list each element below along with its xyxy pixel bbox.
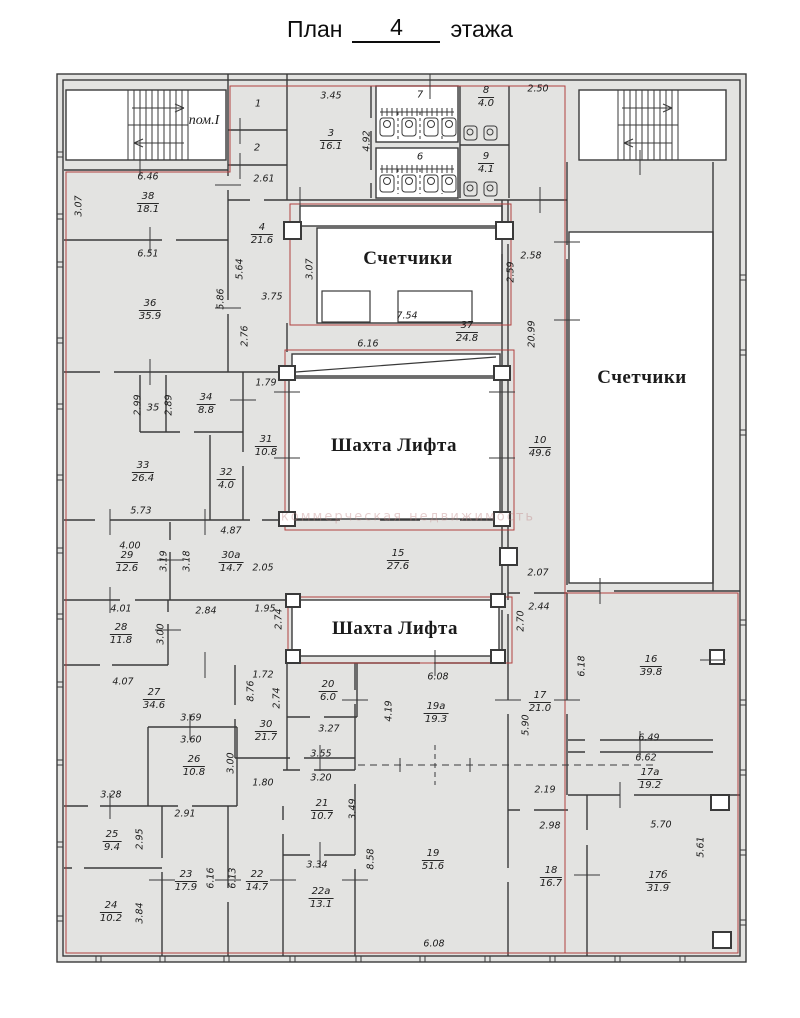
- dimension-label: 2.07: [527, 568, 548, 579]
- room-label: 2811.8: [110, 622, 132, 646]
- dimension-label: 1.72: [252, 670, 273, 681]
- dimension-label: 5.61: [696, 836, 707, 857]
- room-label: 316.1: [320, 128, 342, 152]
- dimension-label: 2.19: [534, 785, 555, 796]
- meters-room-center: [317, 228, 502, 323]
- dimension-label: 6.46: [137, 172, 158, 183]
- dimension-label: 2.58: [520, 251, 541, 262]
- dimension-label: 6.16: [357, 339, 378, 350]
- watermark: коммерческая недвижимость: [281, 510, 535, 525]
- dimension-label: 6.51: [137, 249, 158, 260]
- room-label: 7: [417, 89, 423, 101]
- room-label: 30а14.7: [219, 550, 244, 574]
- room-label: 2734.6: [143, 687, 165, 711]
- dimension-label: 3.07: [305, 258, 316, 279]
- dimension-label: 2.74: [274, 608, 285, 629]
- floor-plan-page: План4этажа: [0, 0, 800, 1018]
- dimension-label: 2.91: [174, 809, 195, 820]
- room-label: 206.0: [319, 679, 338, 703]
- dimension-label: 2.44: [528, 602, 549, 613]
- room-label: 3818.1: [137, 191, 159, 215]
- dimension-label: 2.05: [252, 563, 273, 574]
- dimension-label: 2.95: [135, 828, 146, 849]
- dimension-label: 1.80: [252, 778, 273, 789]
- room-label: 3110.8: [255, 434, 277, 458]
- dimension-label: 2.84: [195, 606, 216, 617]
- room-label: 2317.9: [175, 869, 197, 893]
- dimension-label: 4.19: [384, 700, 395, 721]
- dimension-label: 6.18: [577, 655, 588, 676]
- dimension-label: 8.76: [246, 680, 257, 701]
- room-label: 324.0: [217, 467, 236, 491]
- dimension-label: 3.00: [156, 623, 167, 644]
- room-label: 1527.6: [387, 548, 409, 572]
- room-label: 1: [255, 98, 261, 110]
- dimension-label: 3.07: [74, 195, 85, 216]
- dimension-label: 2.89: [164, 394, 175, 415]
- room-label: 1639.8: [640, 654, 662, 678]
- room-label: 3635.9: [139, 298, 161, 322]
- dimension-label: 4.92: [362, 130, 373, 151]
- room-label: 1049.6: [529, 435, 551, 459]
- dimension-label: 5.86: [216, 288, 227, 309]
- room-label: 3021.7: [255, 719, 277, 743]
- dimension-label: 3.69: [180, 713, 201, 724]
- room-label: 35: [147, 402, 160, 414]
- dimension-label: 3.18: [182, 550, 193, 571]
- dimension-label: 6.16: [206, 867, 217, 888]
- room-label: 421.6: [251, 222, 273, 246]
- dimension-label: 3.84: [135, 902, 146, 923]
- room-label: 19а19.3: [424, 701, 449, 725]
- dimension-label: 6.13: [228, 867, 239, 888]
- dimension-label: 4.07: [112, 677, 133, 688]
- dimension-label: 2.99: [133, 394, 144, 415]
- dimension-label: 2.59: [506, 261, 517, 282]
- room-name-shaft-lower: Шахта Лифта: [332, 618, 458, 640]
- dimension-label: 2.74: [272, 687, 283, 708]
- room-label: 3724.8: [456, 320, 478, 344]
- room-label: 6: [417, 151, 423, 163]
- dimension-label: 2.50: [527, 84, 548, 95]
- dimension-label: 4.00: [119, 541, 140, 552]
- dimension-label: 2.70: [516, 610, 527, 631]
- room-label: 259.4: [103, 829, 122, 853]
- room-label: 1951.6: [422, 848, 444, 872]
- room-label: 1816.7: [540, 865, 562, 889]
- dimension-label: 5.90: [521, 714, 532, 735]
- meters-room-right: [569, 232, 713, 583]
- dimension-label: 8.58: [366, 848, 377, 869]
- room-name-shaft-center: Шахта Лифта: [331, 435, 457, 457]
- vestibule: [300, 206, 502, 226]
- dimension-label: 6.49: [638, 733, 659, 744]
- dimension-label: 4.87: [220, 526, 241, 537]
- dimension-label: 5.73: [130, 506, 151, 517]
- dimension-label: 6.08: [423, 939, 444, 950]
- dimension-label: 5.64: [235, 258, 246, 279]
- dimension-label: 3.28: [100, 790, 121, 801]
- dimension-label: 4.01: [110, 604, 131, 615]
- room-label: 84.0: [478, 85, 494, 109]
- room-label: 2: [254, 142, 260, 154]
- dimension-label: 7.54: [396, 311, 417, 322]
- room-label: 2410.2: [100, 900, 122, 924]
- dimension-label: 3.45: [320, 91, 341, 102]
- dimension-label: 3.20: [310, 773, 331, 784]
- dimension-label: 3.27: [318, 724, 339, 735]
- dimension-label: 2.76: [240, 325, 251, 346]
- dimension-label: 1.95: [254, 604, 275, 615]
- dimension-label: 3.75: [261, 292, 282, 303]
- room-label: 348.8: [197, 392, 216, 416]
- room-label: 1721.0: [529, 690, 551, 714]
- dimension-label: 3.19: [159, 550, 170, 571]
- dimension-label: 3.34: [306, 860, 327, 871]
- room-label: 17а19.2: [638, 767, 663, 791]
- room-label: 94.1: [478, 151, 494, 175]
- dimension-label: 1.79: [255, 378, 276, 389]
- room-label: 2110.7: [311, 798, 333, 822]
- room-name-meters-center: Счетчики: [363, 248, 453, 270]
- room-label: 2214.7: [246, 869, 268, 893]
- dimension-label: 3.55: [310, 749, 331, 760]
- dimension-label: 2.61: [253, 174, 274, 185]
- room-name-pom1: пом.I: [189, 113, 220, 129]
- dimension-label: 3.00: [226, 752, 237, 773]
- room-label: 2912.6: [116, 550, 138, 574]
- room-label: 17б31.9: [646, 870, 671, 894]
- room-name-meters-right: Счетчики: [597, 367, 687, 389]
- dimension-label: 5.70: [650, 820, 671, 831]
- room-label: 22а13.1: [309, 886, 334, 910]
- dimension-label: 6.08: [427, 672, 448, 683]
- room-label: 3326.4: [132, 460, 154, 484]
- dimension-label: 3.49: [348, 798, 359, 819]
- dimension-label: 2.98: [539, 821, 560, 832]
- dimension-label: 6.62: [635, 753, 656, 764]
- room-label: 2610.8: [183, 754, 205, 778]
- dimension-label: 20.99: [527, 320, 538, 347]
- dimension-label: 3.60: [180, 735, 201, 746]
